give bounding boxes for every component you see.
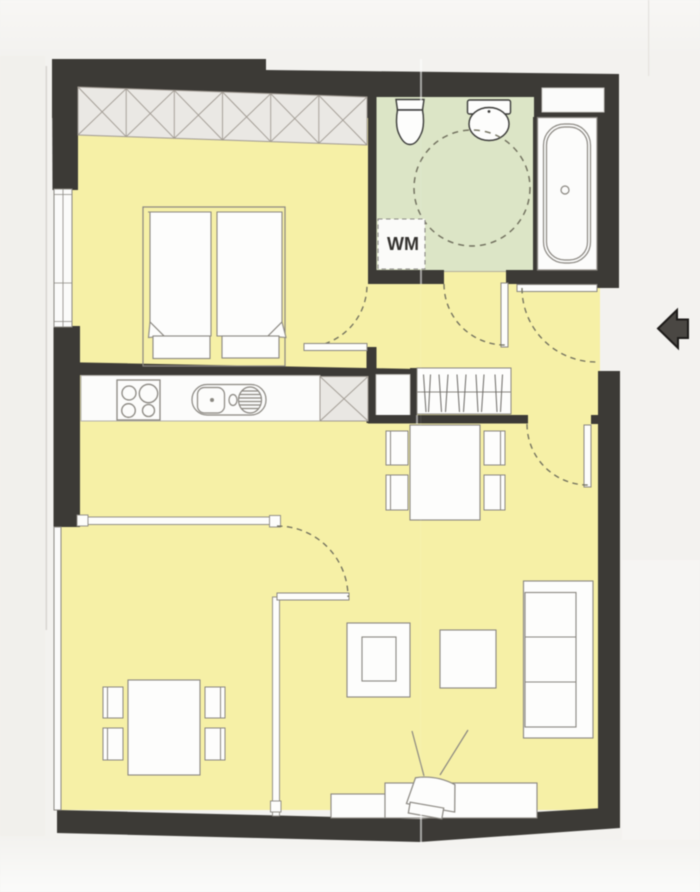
- svg-text:WM: WM: [387, 234, 419, 254]
